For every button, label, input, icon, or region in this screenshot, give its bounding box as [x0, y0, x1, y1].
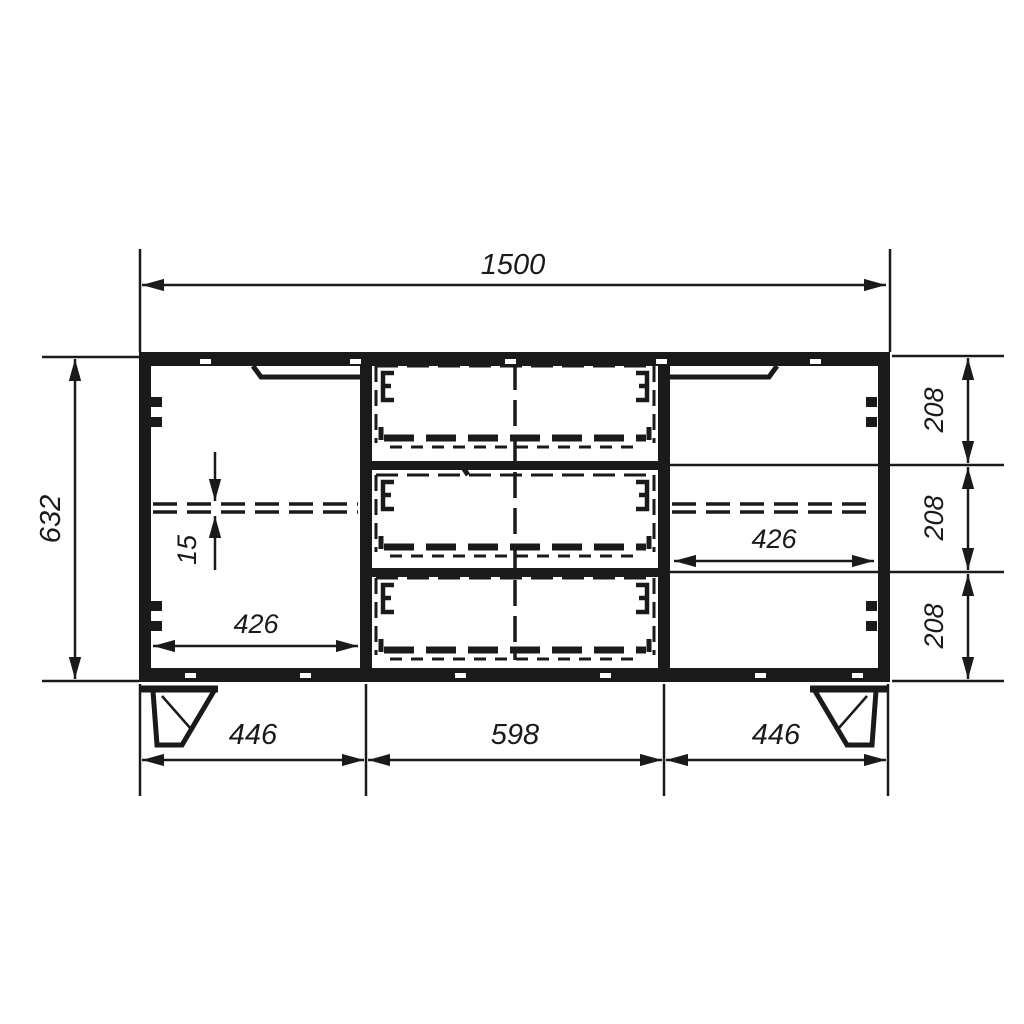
- cabinet-dimension-drawing: 1500 632 208 208 208 426 426 15 446 598 …: [0, 0, 1024, 1024]
- drawer-2-left-slide-bracket: [383, 482, 394, 509]
- dim-drawer-1-height-label: 208: [919, 387, 949, 433]
- right-door-hinges: [866, 397, 877, 631]
- drawer-divider-bottom: [360, 568, 670, 577]
- right-divider-panel: [658, 352, 670, 682]
- bottom-panel: [139, 668, 890, 682]
- dim-drawer-2-height-label: 208: [919, 495, 949, 541]
- dim-drawer-3-height-label: 208: [919, 603, 949, 649]
- drawer-1-right-slide-bracket: [636, 373, 647, 400]
- left-divider-panel: [360, 352, 372, 682]
- left-leg: [140, 689, 218, 745]
- drawing-canvas: 1500 632 208 208 208 426 426 15 446 598 …: [0, 0, 1024, 1024]
- dim-right-inner-width-label: 426: [751, 524, 797, 554]
- right-leg: [810, 689, 889, 745]
- left-compartment-shelf: [153, 504, 358, 512]
- drawer-1-left-slide-bracket: [383, 373, 394, 400]
- dim-bottom-left-label: 446: [229, 719, 278, 751]
- drawer-3-left-slide-bracket: [383, 585, 394, 612]
- dim-overall-height-label: 632: [35, 495, 67, 543]
- drawer-divider-top: [360, 461, 670, 470]
- dim-shelf-thickness-label: 15: [172, 534, 202, 565]
- right-side-panel: [878, 352, 890, 682]
- left-door-hinges: [151, 397, 162, 631]
- dim-bottom-middle-label: 598: [491, 719, 539, 751]
- extension-lines: [42, 249, 1004, 796]
- dim-overall-width-label: 1500: [481, 249, 546, 281]
- dowel-marks: [185, 359, 863, 678]
- dim-left-inner-width-label: 426: [233, 609, 279, 639]
- left-door-top-reveal: [253, 366, 361, 377]
- left-side-panel: [139, 352, 151, 682]
- dim-bottom-right-label: 446: [752, 719, 801, 751]
- right-compartment-shelf: [672, 504, 876, 512]
- drawer-2-right-slide-bracket: [636, 482, 647, 509]
- drawer-3-right-slide-bracket: [636, 585, 647, 612]
- right-door-top-reveal: [669, 366, 777, 377]
